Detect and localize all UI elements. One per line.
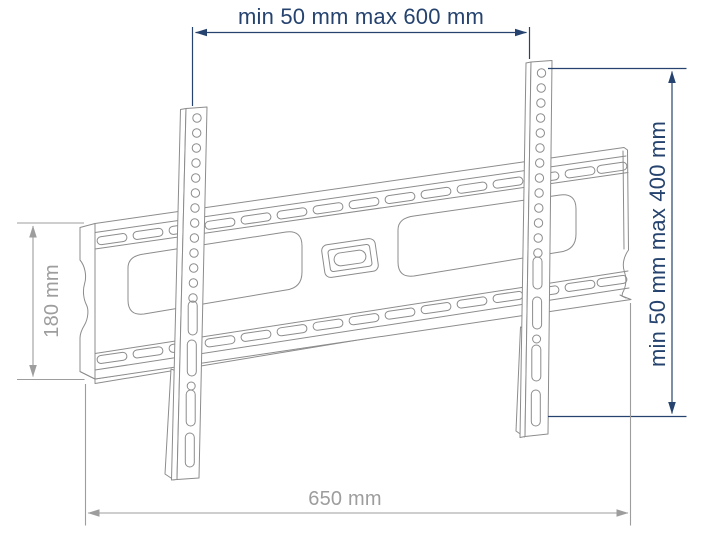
dimension-right-label: min 50 mm max 400 mm	[645, 121, 670, 367]
diagram: min 50 mm max 600 mm min 50 mm max 400 m…	[0, 0, 701, 544]
diagram-canvas: min 50 mm max 600 mm min 50 mm max 400 m…	[0, 0, 701, 544]
plate-left-side-face	[80, 224, 95, 380]
dimension-top-label: min 50 mm max 600 mm	[238, 4, 484, 29]
level-recess	[321, 238, 379, 278]
dimension-top	[193, 27, 530, 106]
dimension-left-label: 180 mm	[41, 264, 63, 337]
dimension-bottom-label: 650 mm	[308, 488, 381, 510]
